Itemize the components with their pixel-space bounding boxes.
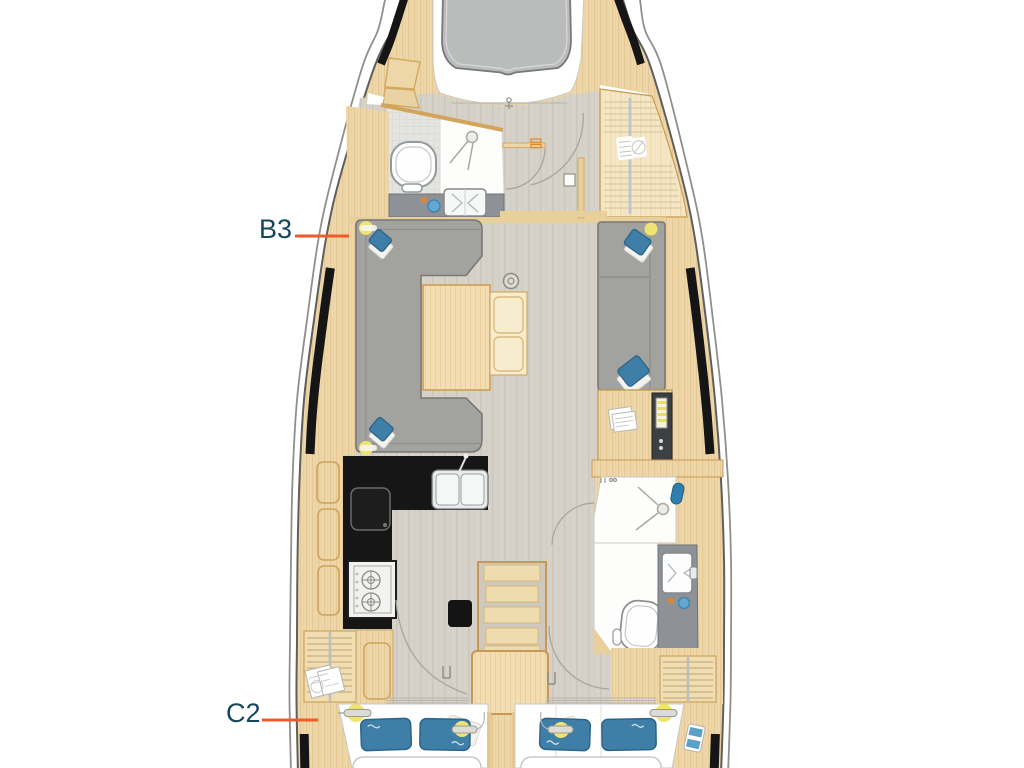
svg-text:B3: B3 — [259, 214, 292, 244]
svg-text:C2: C2 — [226, 698, 261, 728]
